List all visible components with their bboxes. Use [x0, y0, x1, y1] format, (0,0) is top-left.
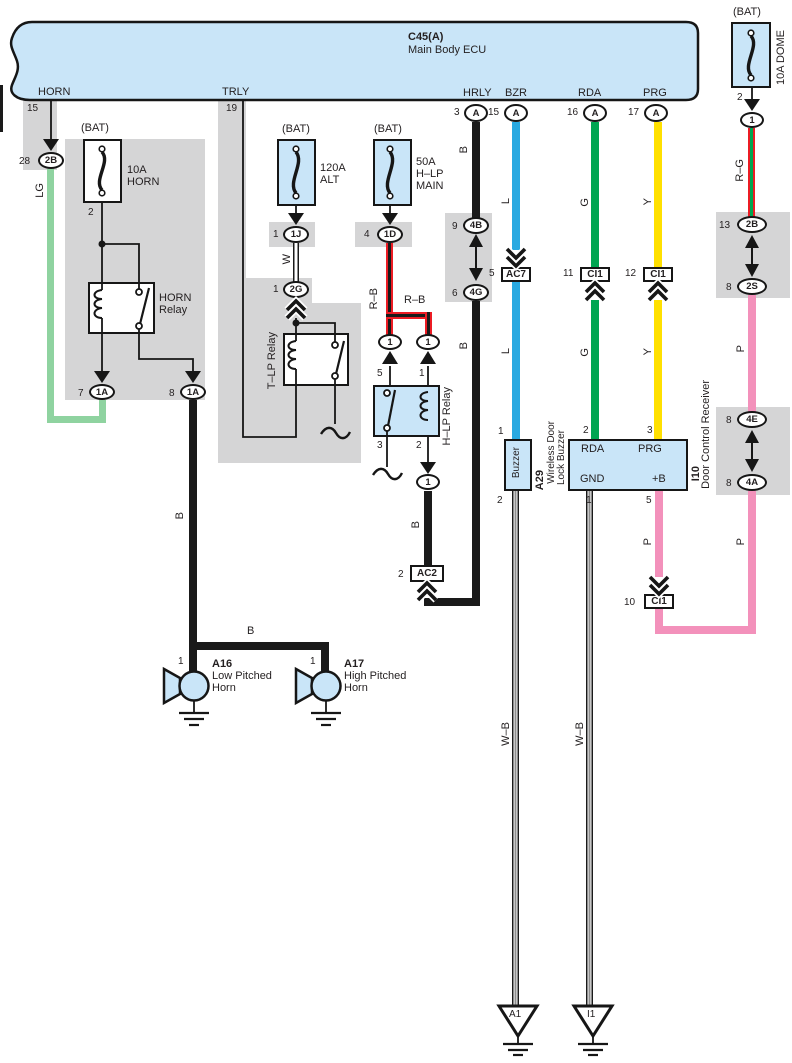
conn-a-hrly: A — [464, 104, 488, 122]
conn-1d: 1D — [377, 226, 403, 243]
wire-g-2 — [591, 300, 599, 439]
wire-y-2 — [654, 300, 662, 439]
buzzer-code: A29 — [534, 470, 546, 490]
recv-pin2: 2 — [583, 425, 589, 436]
hlp-pin3: 3 — [377, 440, 383, 451]
wire-p-right-low — [748, 491, 756, 634]
pin-num-trly: 19 — [226, 103, 237, 114]
ecu-pin-trly: TRLY — [222, 86, 249, 98]
a17-name2: Horn — [344, 682, 368, 694]
a17-name1: High Pitched — [344, 670, 406, 682]
squiggle-hlp — [373, 469, 402, 479]
wire-l-2 — [512, 282, 520, 439]
wire-wb-buzzer — [512, 491, 519, 1007]
fuse-main-rating: 50A — [416, 156, 436, 168]
wire-y-1 — [654, 122, 662, 267]
wire-p-b — [655, 491, 663, 577]
fuse-horn-pin: 2 — [88, 207, 94, 218]
wire-a16-stub — [189, 650, 197, 672]
fuse-dome-box — [731, 22, 771, 88]
num-2s: 8 — [726, 282, 732, 293]
wire-lg-horiz — [47, 416, 106, 423]
conn-8-1a: 1A — [180, 384, 206, 400]
num-28: 28 — [19, 156, 30, 167]
recv-prg: PRG — [638, 443, 662, 455]
conn-ac2: AC2 — [410, 565, 444, 582]
num-ci1-10: 10 — [624, 597, 635, 608]
conn-2b-left: 2B — [38, 152, 64, 169]
conn-ci1-10: CI1 — [644, 594, 674, 609]
conn-4g: 4G — [463, 284, 489, 301]
num-ac7: 5 — [489, 268, 495, 279]
a16-pin: 1 — [178, 656, 184, 667]
ecu-pin-hrly: HRLY — [463, 87, 492, 99]
ecu-pin-bzr: BZR — [505, 87, 527, 99]
ecu-pin-horn: HORN — [38, 86, 70, 98]
wire-label-p-b: P — [642, 538, 654, 545]
wire-p-right-mid — [748, 295, 756, 412]
buzzer-pin1: 1 — [498, 426, 504, 437]
wire-label-wb2: W–B — [574, 722, 586, 746]
recv-pin3: 3 — [647, 425, 653, 436]
ecu-pin-rda: RDA — [578, 87, 601, 99]
conn-4a: 4A — [737, 474, 767, 491]
horn-a16-icon — [164, 669, 209, 725]
wire-lg-vert — [47, 169, 54, 423]
wire-hlp-b — [424, 491, 432, 565]
conn-a-rda: A — [583, 104, 607, 122]
horn-relay-box — [88, 282, 155, 334]
hlp-relay-name: H–LP Relay — [441, 387, 453, 446]
wire-label-g2: G — [579, 348, 591, 357]
fuse-horn-name: HORN — [127, 176, 159, 188]
bat-main: (BAT) — [374, 123, 402, 135]
pin-num-rda: 16 — [567, 107, 578, 118]
wire-label-l2: L — [500, 348, 512, 354]
wire-label-b-hlp: B — [410, 521, 422, 528]
conn-a-prg: A — [644, 104, 668, 122]
wiring-diagram: 2B A A A A 1J 2G 1D 4B 4G 1A 1A 1 1 1 1 … — [0, 0, 792, 1063]
wire-label-b-hrly2: B — [458, 342, 470, 349]
num-1d: 4 — [364, 229, 370, 240]
conn-2b-right: 2B — [737, 216, 767, 233]
wire-horn-b-vert — [189, 400, 197, 646]
conn-dome-1: 1 — [740, 112, 764, 128]
a16-name1: Low Pitched — [212, 670, 272, 682]
wire-label-l1: L — [500, 198, 512, 204]
pin-num-bzr: 15 — [488, 107, 499, 118]
wire-l-1 — [512, 122, 520, 250]
num-ac2: 2 — [398, 569, 404, 580]
tlp-relay-name: T–LP Relay — [266, 332, 278, 389]
wire-label-b-horn: B — [174, 512, 186, 519]
wire-rb-vert2 — [425, 312, 432, 336]
wire-lg-up — [99, 400, 106, 423]
num-ci1-11: 11 — [563, 268, 573, 279]
a16-code: A16 — [212, 658, 232, 670]
wire-label-b-hrly1: B — [458, 146, 470, 153]
recv-pin5: 5 — [646, 495, 652, 506]
pin-num-hrly: 3 — [454, 107, 460, 118]
ecu-pin-prg: PRG — [643, 87, 667, 99]
recv-pin1: 1 — [586, 495, 592, 506]
wire-label-y1: Y — [642, 198, 654, 205]
fuse-alt-name: ALT — [320, 174, 339, 186]
page-edge — [0, 85, 3, 132]
wire-w — [293, 243, 299, 282]
hlp-pin5: 5 — [377, 368, 383, 379]
conn-7-1a: 1A — [89, 384, 115, 400]
conn-rb-left: 1 — [378, 334, 402, 350]
fuse-alt-rating: 120A — [320, 162, 346, 174]
conn-ac7: AC7 — [501, 267, 531, 282]
wire-a17-stub — [321, 650, 329, 672]
fuse-horn-rating: 10A — [127, 164, 147, 176]
conn-1j: 1J — [283, 226, 309, 243]
wire-wb-recv — [586, 491, 593, 1007]
shade-trly-strip — [218, 100, 246, 280]
ecu-name: Main Body ECU — [408, 44, 486, 56]
num-4a: 8 — [726, 478, 732, 489]
wire-label-y2: Y — [642, 348, 654, 355]
conn-4b: 4B — [463, 217, 489, 234]
recv-rda: RDA — [581, 443, 604, 455]
wire-horn-b-horiz — [189, 642, 329, 650]
wire-g-1 — [591, 122, 599, 267]
wire-rg — [748, 128, 755, 218]
wire-hrly-b1 — [472, 122, 480, 218]
conn-2s: 2S — [737, 278, 767, 295]
wire-p-horiz — [655, 626, 756, 634]
buzzer-pin2: 2 — [497, 495, 503, 506]
num-1j: 1 — [273, 229, 279, 240]
num-4g: 6 — [452, 288, 458, 299]
wire-label-rb2: R–B — [404, 294, 425, 306]
num-8: 8 — [169, 388, 175, 399]
fuse-dome-name: 10A DOME — [775, 30, 787, 85]
tlp-relay-box — [283, 333, 349, 386]
conn-rb-right: 1 — [416, 334, 440, 350]
wire-label-rg: R–G — [734, 159, 746, 182]
wire-label-p-low: P — [735, 538, 747, 545]
fuse-main-name2: MAIN — [416, 180, 444, 192]
fuse-alt-box — [277, 139, 316, 206]
fuse-main-name1: H–LP — [416, 168, 444, 180]
recv-pb: +B — [652, 473, 666, 485]
a17-code: A17 — [344, 658, 364, 670]
conn-ci1-11: CI1 — [580, 267, 610, 282]
wire-label-rb1: R–B — [368, 288, 380, 309]
a16-name2: Horn — [212, 682, 236, 694]
hlp-relay-box — [373, 385, 440, 437]
wire-label-lg: LG — [34, 183, 46, 198]
wire-label-p-mid: P — [735, 345, 747, 352]
conn-2g: 2G — [283, 281, 309, 298]
horn-relay-name2: Relay — [159, 304, 187, 316]
pin-num-prg: 17 — [628, 107, 639, 118]
a17-pin: 1 — [310, 656, 316, 667]
conn-hlp-out: 1 — [416, 474, 440, 490]
wire-label-w: W — [281, 254, 293, 264]
num-13: 13 — [719, 220, 730, 231]
hlp-pin1: 1 — [419, 368, 425, 379]
horn-relay-name1: HORN — [159, 292, 191, 304]
horn-a17-icon — [296, 669, 341, 725]
hlp-pin2: 2 — [416, 440, 422, 451]
wire-label-b-horiz: B — [247, 625, 254, 637]
bat-horn: (BAT) — [81, 122, 109, 134]
bat-dome: (BAT) — [733, 6, 761, 18]
num-7: 7 — [78, 388, 84, 399]
bat-alt: (BAT) — [282, 123, 310, 135]
recv-name: Door Control Receiver — [700, 380, 712, 489]
pin-num-horn: 15 — [27, 103, 38, 114]
num-4b: 9 — [452, 221, 458, 232]
conn-a-bzr: A — [504, 104, 528, 122]
wire-label-wb1: W–B — [500, 722, 512, 746]
conn-ci1-12: CI1 — [643, 267, 673, 282]
num-2g: 1 — [273, 284, 279, 295]
buzzer-desc2: Lock Buzzer — [556, 430, 567, 485]
ground-i1-label: I1 — [587, 1009, 595, 1020]
num-4e: 8 — [726, 415, 732, 426]
ground-a1-label: A1 — [509, 1009, 521, 1020]
fuse-horn-box — [83, 139, 122, 203]
buzzer-name: Buzzer — [511, 447, 522, 478]
recv-gnd: GND — [580, 473, 604, 485]
ecu-code: C45(A) — [408, 31, 443, 43]
num-ci1-12: 12 — [625, 268, 636, 279]
wire-hrly-b2 — [472, 301, 480, 603]
wire-rb-vert — [386, 243, 393, 336]
wire-label-g1: G — [579, 198, 591, 207]
fuse-hlp-main-box — [373, 139, 412, 206]
wire-hrly-b-horiz — [424, 598, 480, 606]
fuse-dome-pin: 2 — [737, 92, 743, 103]
conn-4e: 4E — [737, 411, 767, 428]
